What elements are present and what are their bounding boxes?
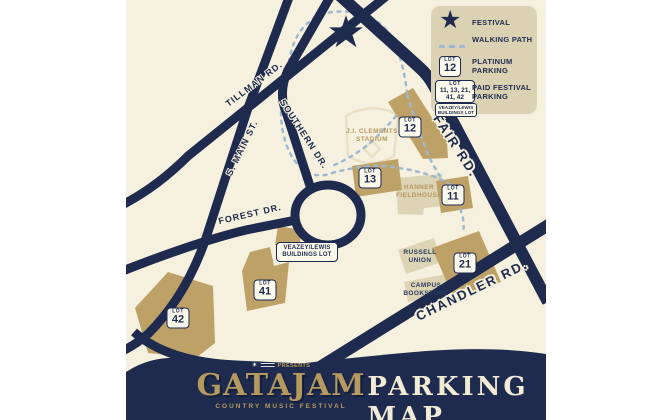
legend-veazey-line2: BUILDINGS LOT xyxy=(436,110,476,115)
legend-platinum-label: PLATINUM PARKING xyxy=(472,58,534,75)
stadium-label: J.I. CLEMENTS STADIUM xyxy=(343,128,401,144)
lot-12-number: 12 xyxy=(400,124,421,135)
legend-walking-path-label: WALKING PATH xyxy=(472,36,534,45)
hanner-label: HANNER FIELDHOUSE xyxy=(396,184,442,200)
lot-41-number: 41 xyxy=(255,287,276,298)
campus-bookstore-label: CAMPUS BOOKSTORE xyxy=(402,282,450,298)
russell-union-label: RUSSELL UNION xyxy=(401,249,439,265)
map-canvas: ★ TILLMAN RD. S. MAIN ST. SOUTHERN DR. F… xyxy=(126,0,546,420)
legend-paid-label: PAID FESTIVAL PARKING xyxy=(472,84,534,101)
legend-platinum-badge: LOT 12 xyxy=(439,56,461,77)
lot-11-badge: LOT 11 xyxy=(442,185,465,206)
page-title: PARKING MAP xyxy=(367,372,528,420)
lot-21-number: 21 xyxy=(455,260,476,271)
legend-festival-label: FESTIVAL xyxy=(472,19,534,28)
legend-veazey-mini-badge: VEAZEY/LEWIS BUILDINGS LOT xyxy=(435,103,477,117)
lot-42-number: 42 xyxy=(168,315,189,326)
veazey-line2: BUILDINGS LOT xyxy=(277,252,337,259)
legend-panel: ★ FESTIVAL WALKING PATH LOT 12 PLATINUM … xyxy=(431,6,537,114)
lot-13-badge: LOT 13 xyxy=(359,168,382,189)
lot-21-badge: LOT 21 xyxy=(454,253,477,274)
legend-platinum-number: 12 xyxy=(440,63,460,74)
legend-paid-badge: LOT 11, 13, 21, 41, 42 xyxy=(435,80,475,103)
lot-41-badge: LOT 41 xyxy=(254,280,277,301)
veazey-lewis-badge: VEAZEY/LEWIS BUILDINGS LOT xyxy=(276,242,338,262)
lot-13-number: 13 xyxy=(360,175,381,186)
festival-logo-subtitle: COUNTRY MUSIC FESTIVAL xyxy=(215,403,346,410)
legend-walking-path-icon xyxy=(439,45,465,48)
legend-festival-star-icon: ★ xyxy=(439,8,461,33)
lot-11-number: 11 xyxy=(443,192,464,203)
festival-star-icon: ★ xyxy=(326,11,365,55)
lot-12-badge: LOT 12 xyxy=(399,117,422,138)
legend-paid-numbers-1: 11, 13, 21, xyxy=(436,87,474,94)
parking-map-page: ★ TILLMAN RD. S. MAIN ST. SOUTHERN DR. F… xyxy=(0,0,672,420)
lot-42-badge: LOT 42 xyxy=(167,308,190,329)
legend-paid-numbers-2: 41, 42 xyxy=(436,94,474,101)
veazey-line1: VEAZEY/LEWIS xyxy=(277,245,337,252)
road-loop xyxy=(295,185,361,245)
festival-logo-title: GATAJAM xyxy=(197,368,366,403)
